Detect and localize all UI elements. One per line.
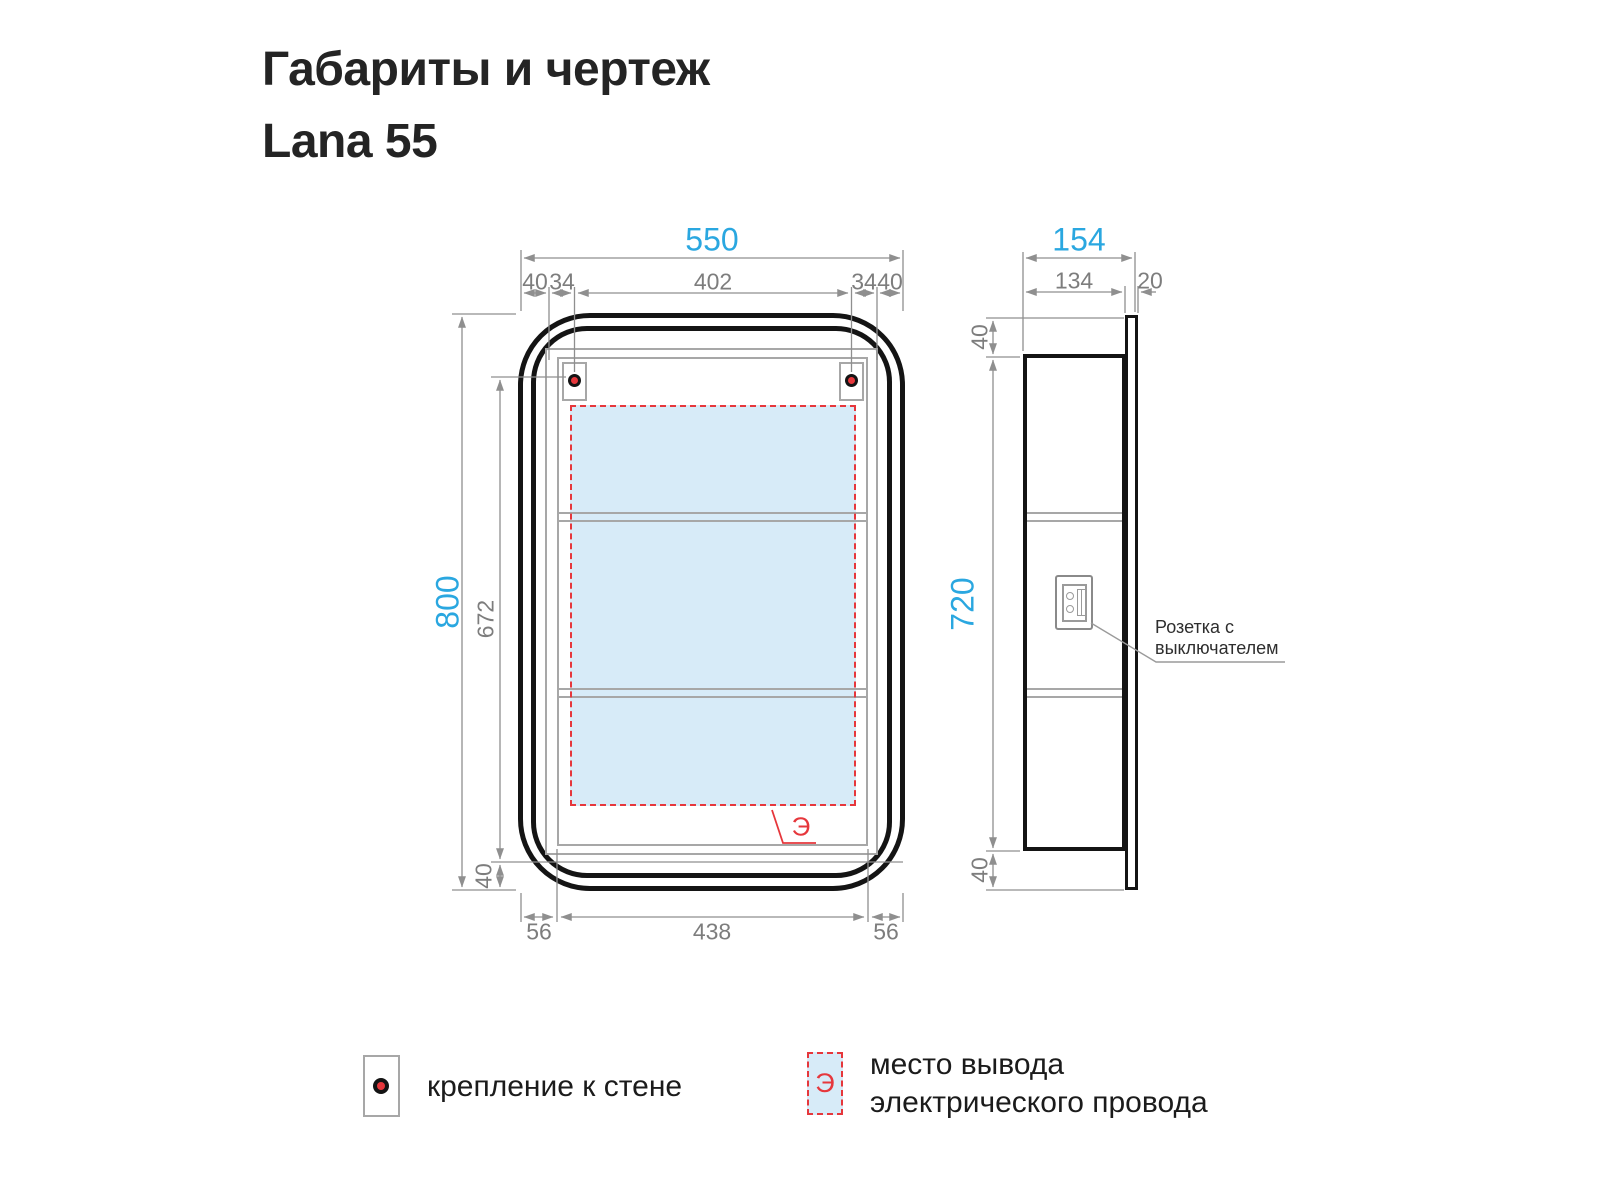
dim-side-door-depth: 20 xyxy=(1137,268,1163,295)
dim-side-body-depth: 134 xyxy=(1055,268,1093,295)
side-shelf-upper xyxy=(1027,512,1122,522)
wall-fixing-dot-right-core xyxy=(848,377,855,384)
legend-electrical-outlet-line2: электрического провода xyxy=(870,1084,1208,1122)
dim-side-bottom-margin: 40 xyxy=(967,857,994,883)
dim-front-total-height: 800 xyxy=(430,575,467,628)
dim-front-bottom-inner: 438 xyxy=(693,919,731,946)
electrical-zone-symbol: Э xyxy=(792,812,811,843)
page-title-line2: Lana 55 xyxy=(262,106,709,178)
legend-wall-mount-label: крепление к стене xyxy=(427,1068,682,1106)
page-title: Габариты и чертеж Lana 55 xyxy=(262,34,709,178)
dim-side-top-margin: 40 xyxy=(967,324,994,350)
dim-front-mount-height: 672 xyxy=(473,600,500,638)
dim-front-left-offset: 34 xyxy=(549,269,575,296)
legend-electrical-outlet-icon: Э xyxy=(807,1052,843,1115)
socket-hole-bottom xyxy=(1066,605,1074,613)
dim-front-bottom-left: 56 xyxy=(526,919,552,946)
dim-front-right-offset: 34 xyxy=(851,269,877,296)
electrical-zone-dashed-outline xyxy=(570,405,856,806)
technical-drawing-page: Габариты и чертеж Lana 55 xyxy=(0,0,1600,1200)
socket-callout-line2: выключателем xyxy=(1155,638,1279,659)
page-title-line1: Габариты и чертеж xyxy=(262,34,709,106)
dim-front-right-margin: 40 xyxy=(877,269,903,296)
dim-side-body-height: 720 xyxy=(945,577,982,630)
legend-electrical-outlet-label: место вывода электрического провода xyxy=(870,1046,1208,1122)
legend-wall-mount-dot-core xyxy=(377,1082,385,1090)
legend-electrical-outlet-line1: место вывода xyxy=(870,1046,1208,1084)
dim-front-bottom-right: 56 xyxy=(873,919,899,946)
legend-electrical-outlet-symbol: Э xyxy=(815,1068,834,1099)
dim-front-mount-span: 402 xyxy=(694,269,732,296)
socket-hole-top xyxy=(1066,592,1074,600)
socket-callout-line1: Розетка с xyxy=(1155,617,1279,638)
wall-fixing-dot-left-core xyxy=(571,377,578,384)
socket-callout: Розетка с выключателем xyxy=(1155,617,1279,659)
dim-side-total-depth: 154 xyxy=(1052,222,1105,259)
dim-front-left-margin: 40 xyxy=(522,269,548,296)
dim-front-bottom-margin: 40 xyxy=(471,863,498,889)
dim-front-total-width: 550 xyxy=(685,222,738,259)
side-shelf-lower xyxy=(1027,688,1122,698)
socket-switch-divider xyxy=(1081,590,1082,615)
side-view-door-panel xyxy=(1125,315,1138,890)
